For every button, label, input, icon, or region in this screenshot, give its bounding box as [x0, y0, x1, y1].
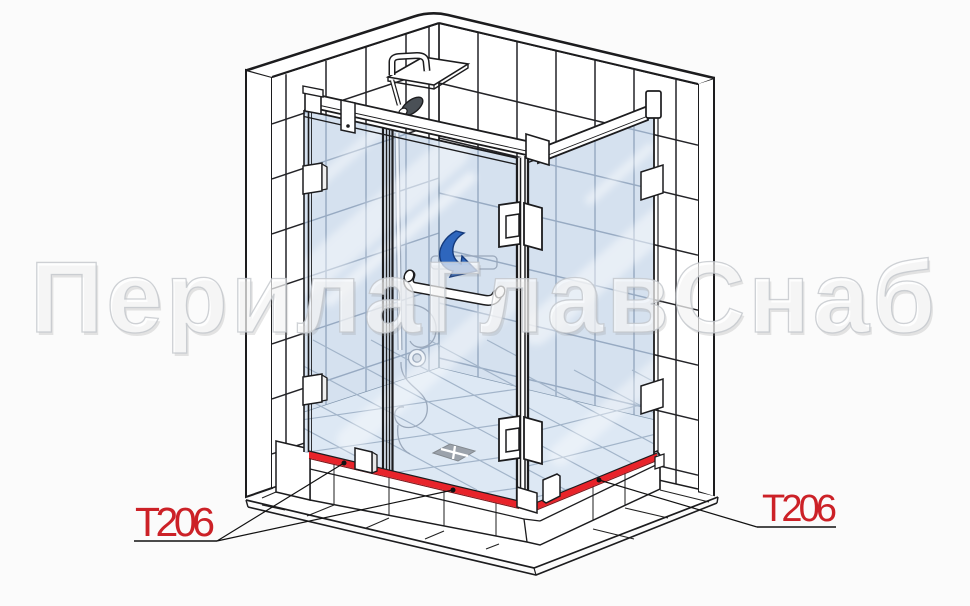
svg-text:T206: T206: [762, 488, 837, 530]
svg-text:T206: T206: [135, 499, 215, 545]
svg-text:ПерилаГлавСнаб: ПерилаГлавСнаб: [30, 240, 935, 354]
